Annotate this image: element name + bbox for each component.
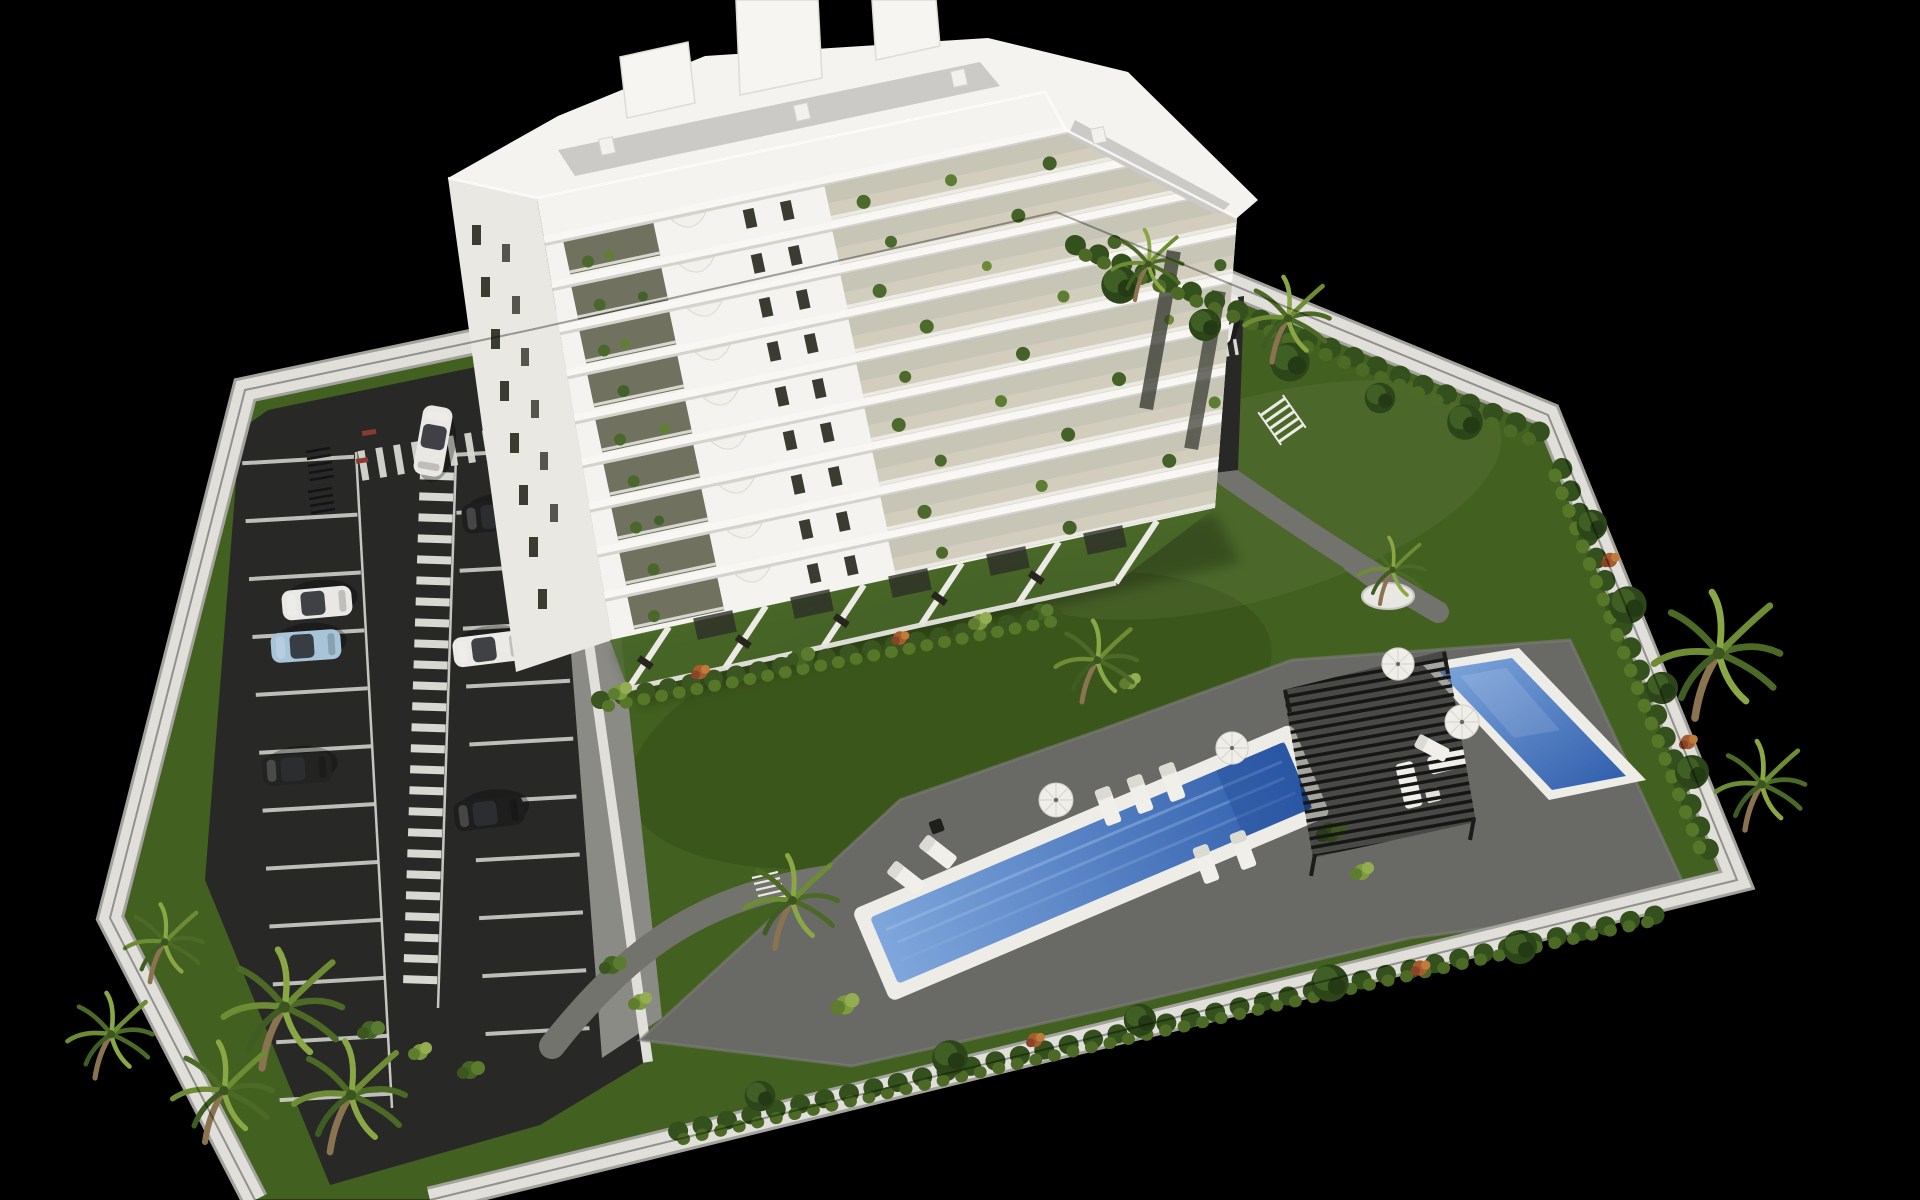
chimney [950,69,967,88]
chimney [793,103,810,122]
chimney [1091,127,1107,144]
chimney [598,137,615,156]
render-canvas [0,0,1920,1200]
rooftop-tower [736,0,822,95]
